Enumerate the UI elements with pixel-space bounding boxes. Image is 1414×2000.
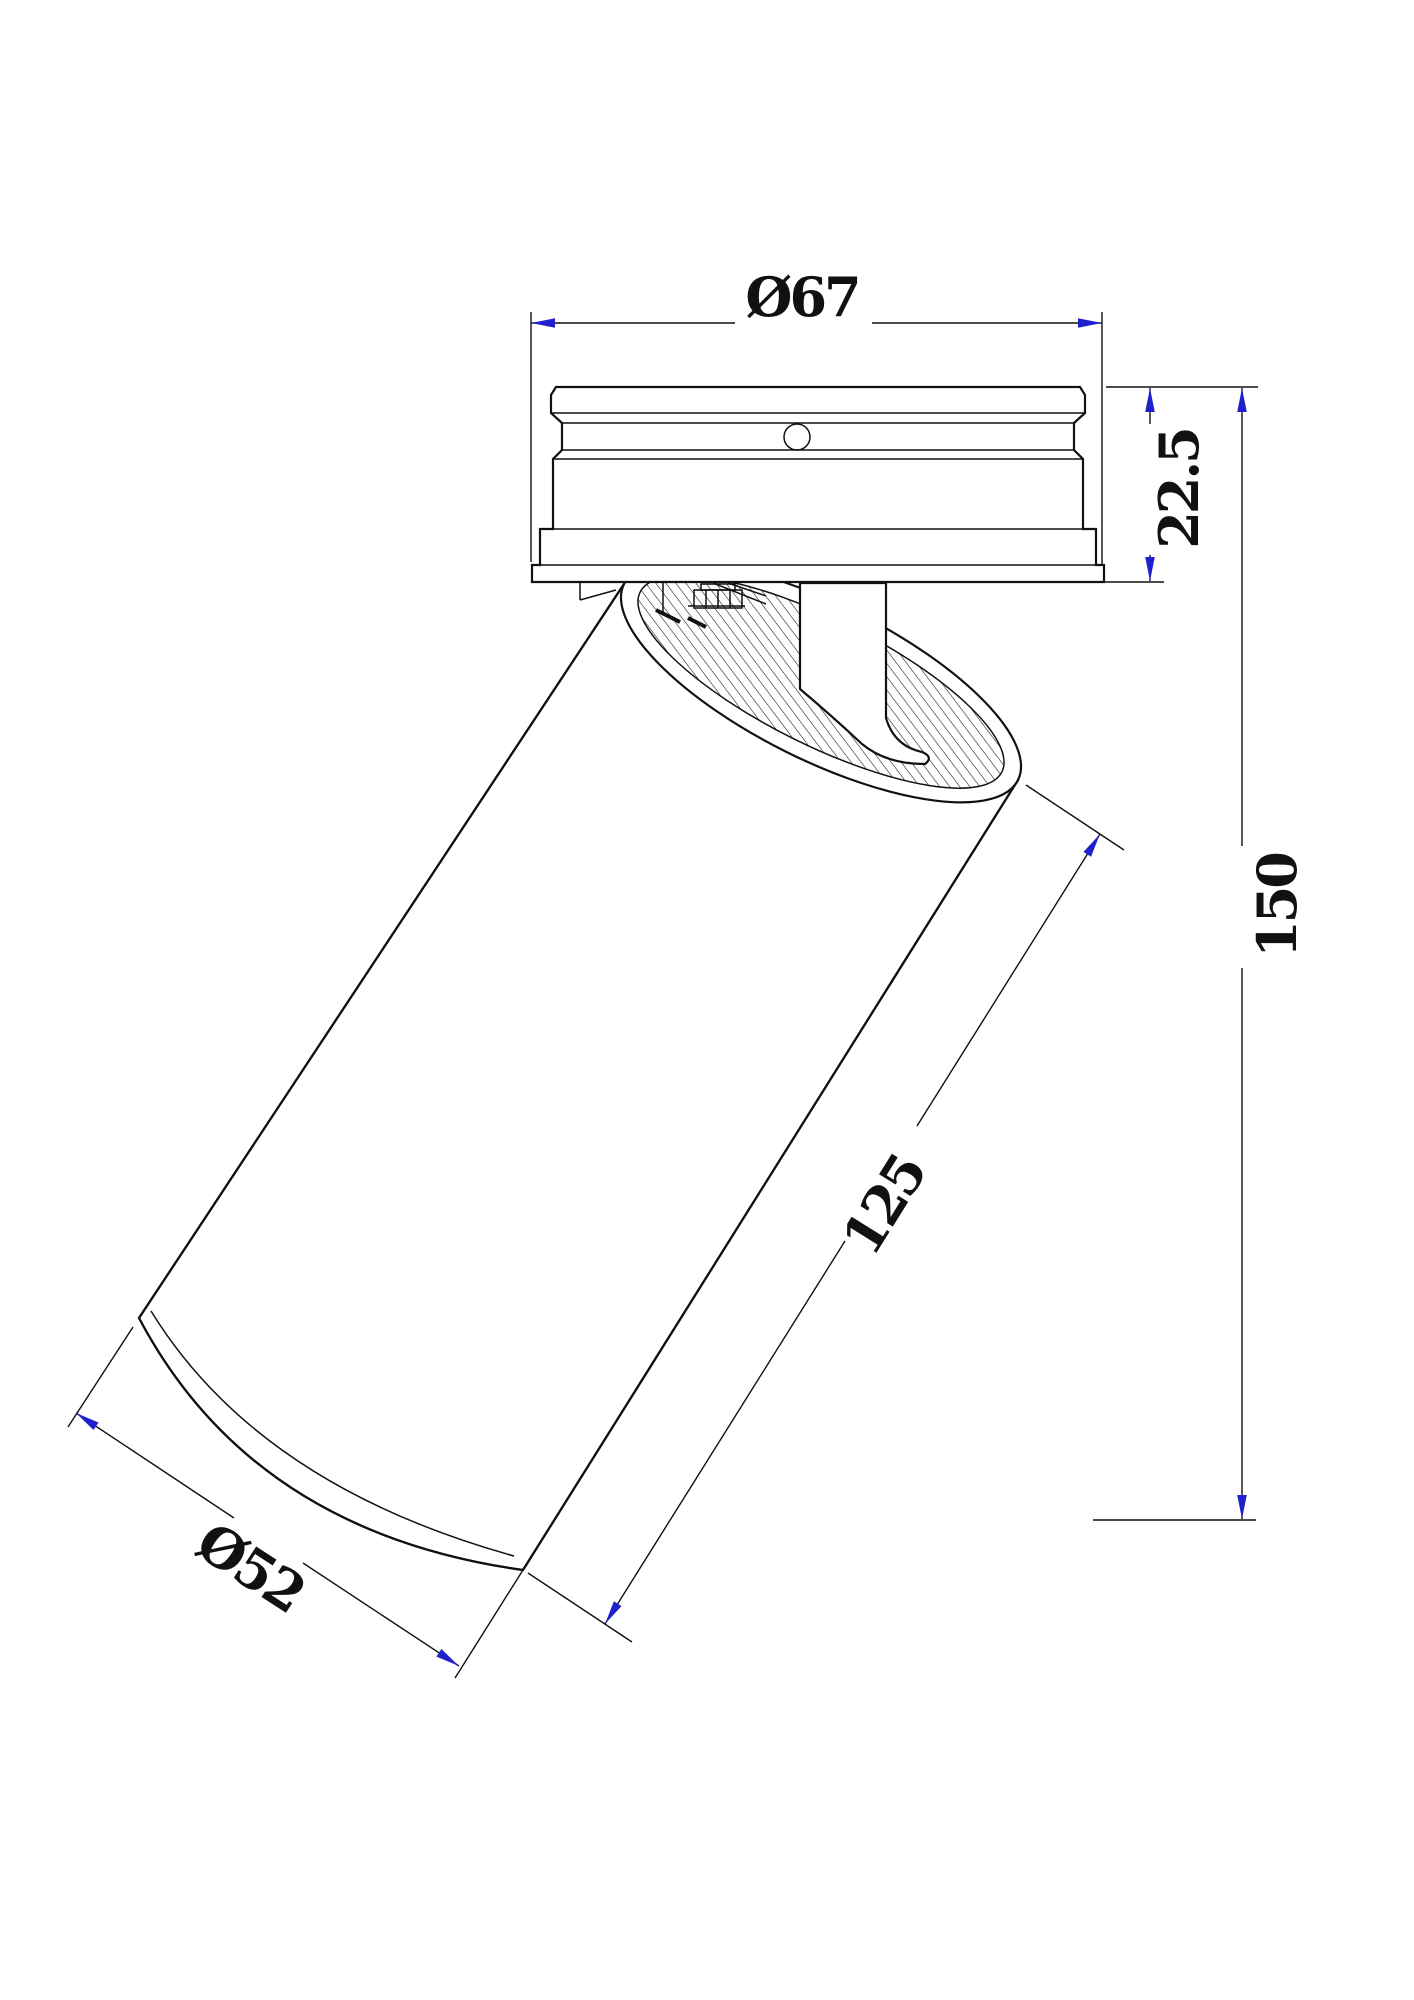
dimension-line	[303, 1563, 459, 1666]
dim-arrow-icon	[1237, 388, 1247, 412]
extension-line	[1026, 785, 1124, 850]
dim-arrow-icon	[436, 1649, 459, 1666]
dim-text-body-length: 125	[829, 1144, 938, 1266]
dim-text-body-diameter: Ø52	[185, 1509, 315, 1624]
dimension-line	[76, 1413, 234, 1518]
dim-arrow-icon	[1084, 834, 1101, 857]
technical-drawing: Ø67 22.5 150 125 Ø52	[0, 0, 1414, 2000]
drawing-canvas: Ø67 22.5 150 125 Ø52	[0, 0, 1414, 2000]
dim-arrow-icon	[1145, 557, 1155, 581]
extension-line	[455, 1570, 523, 1678]
bracket-edge	[580, 590, 616, 600]
spot-head-cylinder	[139, 514, 1053, 1570]
canopy-outline	[532, 387, 1104, 582]
dim-arrow-icon	[1078, 318, 1102, 328]
dim-text-overall-height: 150	[1245, 853, 1309, 958]
dim-arrow-icon	[1237, 1495, 1247, 1519]
dim-arrow-icon	[1145, 388, 1155, 412]
dim-text-canopy-height: 22.5	[1147, 429, 1211, 549]
dim-arrow-icon	[76, 1413, 99, 1430]
dim-arrow-icon	[531, 318, 555, 328]
dim-text-canopy-diameter: Ø67	[745, 265, 858, 329]
dim-arrow-icon	[605, 1601, 622, 1624]
dimension-canopy-height: 22.5	[1104, 387, 1258, 582]
extension-line	[68, 1327, 133, 1427]
canopy-base	[532, 387, 1104, 582]
dimension-overall-height: 150	[1093, 388, 1309, 1520]
